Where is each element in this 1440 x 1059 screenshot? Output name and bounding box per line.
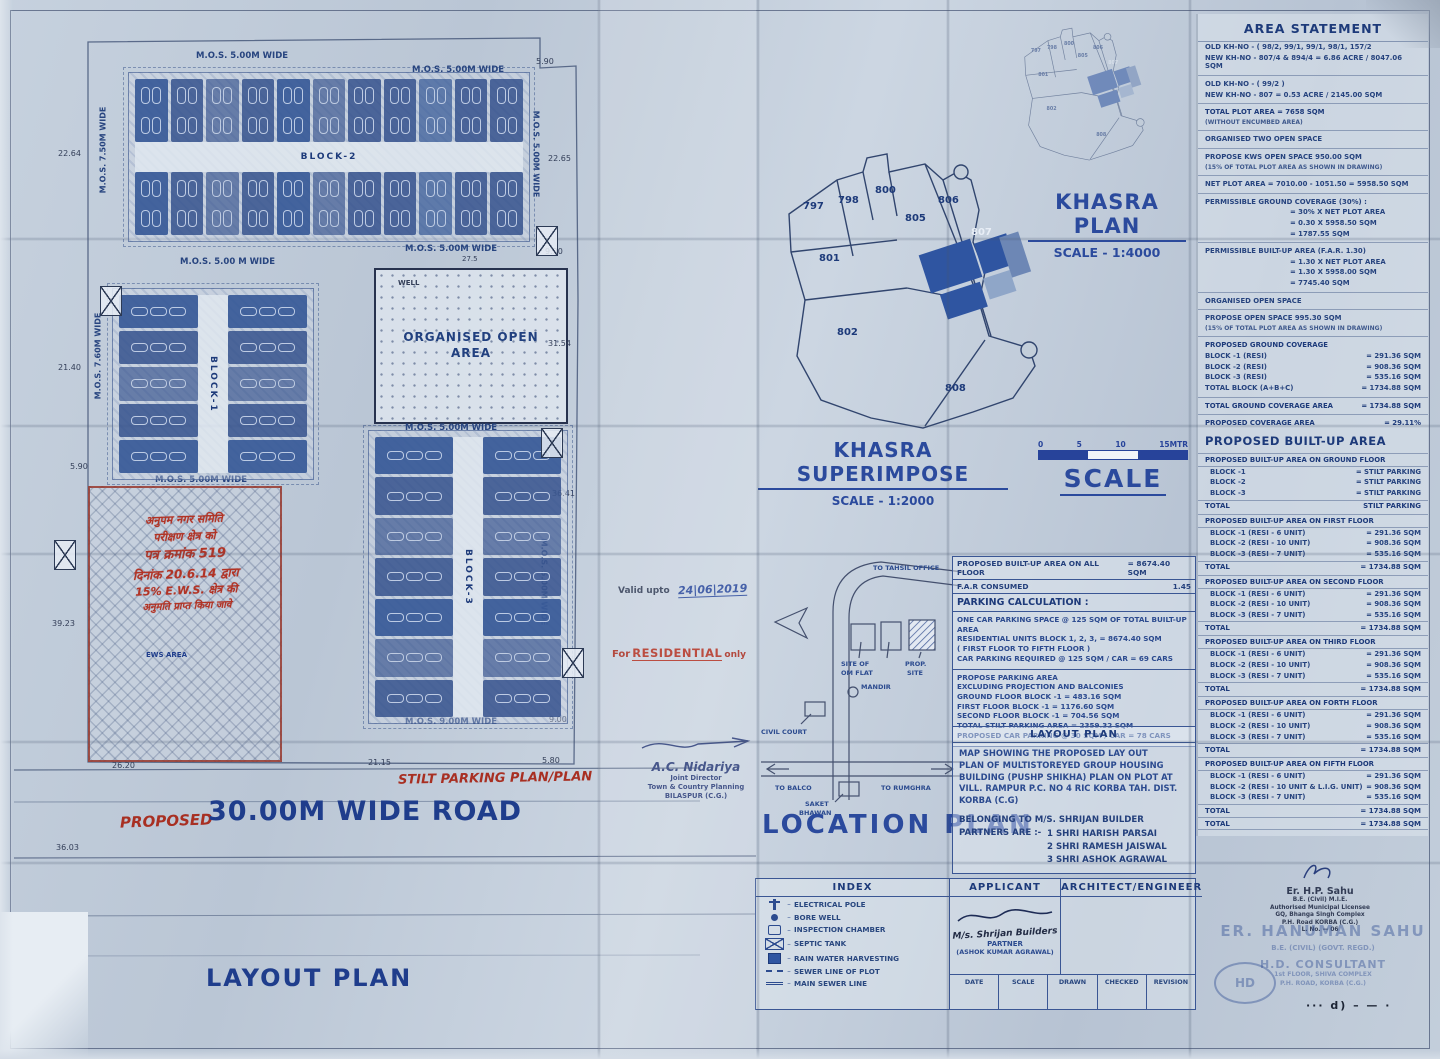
area-statement-rule [1198, 242, 1428, 243]
car-icon [248, 210, 257, 227]
floor-row: BLOCK -1= STILT PARKING [1198, 467, 1428, 478]
car-icon [294, 87, 303, 104]
floor-total-value: = 1734.88 SQM [1360, 563, 1421, 571]
area-statement-row: PROPOSED COVERAGE AREA= 29.11% [1198, 418, 1428, 429]
car-icon [278, 379, 295, 388]
car-icon [497, 210, 506, 227]
area-statement-text: NET PLOT AREA = 7010.00 - 1051.50 = 5958… [1205, 180, 1408, 189]
dim-36-03: 36.03 [56, 844, 79, 852]
floor-block-value: = 535.16 SQM [1366, 793, 1421, 802]
area-statement-rule [1198, 75, 1428, 76]
crossed-box-marker [536, 226, 558, 256]
floor-block-label: BLOCK -1 (RESI - 6 UNIT) [1210, 590, 1305, 599]
car-icon [152, 210, 161, 227]
nidariya-stamp-line: Joint Director [628, 774, 764, 783]
khasra-plot-number-small: 798 [1047, 47, 1057, 52]
car-icon [131, 343, 148, 352]
area-statement-row: BLOCK -1 (RESI)= 291.36 SQM [1198, 351, 1428, 362]
area-statement-text: PROPOSE KWS OPEN SPACE 950.00 SQM [1205, 153, 1362, 162]
stilt-parking-note: STILT PARKING PLAN/PLAN [398, 770, 592, 786]
partner-name: 2 SHRI RAMESH JAISWAL [1047, 841, 1167, 854]
car-icon [141, 180, 150, 197]
dim-5-90-top: 5.90 [536, 58, 554, 66]
car-icon [278, 343, 295, 352]
floor-block-value: = 291.36 SQM [1366, 711, 1421, 720]
floor-block-value: = STILT PARKING [1356, 489, 1421, 498]
applicant-signature-stroke [950, 905, 1060, 925]
area-statement-text: PERMISSIBLE GROUND COVERAGE (30%) : [1205, 198, 1367, 207]
area-statement-row: PERMISSIBLE BUILT-UP AREA (F.A.R. 1.30) [1198, 246, 1428, 257]
car-icon [461, 87, 470, 104]
car-icon [425, 572, 442, 581]
nidariya-stamp-line: Town & Country Planning [628, 783, 764, 792]
parking-stall [171, 79, 204, 142]
block-1-label: BLOCK-1 [208, 356, 218, 413]
car-icon [533, 613, 550, 622]
parking-text-line: ( FIRST FLOOR TO FIFTH FLOOR ) [957, 644, 1191, 654]
car-icon [426, 210, 435, 227]
parking-stall [375, 639, 453, 676]
floor-total-row: TOTAL= 1734.88 SQM [1198, 743, 1428, 755]
area-statement-text: OLD KH-NO - ( 99/2 ) [1205, 80, 1285, 89]
khasra-plot-number: 801 [819, 254, 840, 264]
area-statement-row: PROPOSED GROUND COVERAGE [1198, 340, 1428, 351]
index-dash: – [784, 940, 794, 948]
index-dash: – [784, 967, 794, 975]
area-statement-row: = 1.30 X NET PLOT AREA [1198, 257, 1428, 268]
floor-block-label: BLOCK -1 (RESI - 6 UNIT) [1210, 650, 1305, 659]
car-icon [283, 87, 292, 104]
area-statement-text: (WITHOUT ENCUMBED AREA) [1205, 119, 1303, 127]
area-statement-rule [1198, 292, 1428, 293]
floor-block-label: BLOCK -3 [1210, 489, 1246, 498]
floor-total-row: TOTAL= 1734.88 SQM [1198, 804, 1428, 816]
car-icon [425, 451, 442, 460]
sahu-signature-stroke [1290, 858, 1350, 882]
car-icon [152, 180, 161, 197]
floor-header: PROPOSED BUILT-UP AREA ON FORTH FLOOR [1198, 696, 1428, 710]
bore-well-icon [764, 914, 784, 921]
parking-stall [228, 295, 307, 328]
floor-total-row: TOTAL= 1734.88 SQM [1198, 682, 1428, 694]
car-icon [495, 613, 512, 622]
electrical-pole-icon [773, 899, 776, 910]
layout-plan-description-box: LAYOUT PLAN MAP SHOWING THE PROPOSED LAY… [952, 726, 1196, 874]
car-icon [495, 492, 512, 501]
car-icon [514, 613, 531, 622]
khasra-plan-map: 797798800805806807801802808 [775, 150, 1045, 440]
floor-block-value: = 908.36 SQM [1366, 539, 1421, 548]
car-icon [437, 117, 446, 134]
floor-total-label: TOTAL [1205, 624, 1230, 632]
rain-water-harvesting-icon [764, 953, 784, 964]
car-icon [240, 452, 257, 461]
car-icon [177, 180, 186, 197]
sahu-stamp-line: GQ, Bhanga Singh Complex [1252, 912, 1388, 920]
scale-bar-segments [1038, 450, 1188, 460]
parking-stall [483, 639, 561, 676]
car-icon [514, 492, 531, 501]
location-plan-label: SITE OF [841, 660, 869, 668]
index-title: INDEX [756, 879, 949, 897]
index-item-label: ELECTRICAL POLE [794, 900, 866, 909]
stall-band [135, 172, 523, 235]
main-sewer-icon [764, 982, 784, 985]
car-icon [319, 117, 328, 134]
car-icon [212, 117, 221, 134]
partners-label: PARTNERS ARE :- [959, 828, 1047, 867]
khasra-plot-number-small: 802 [1047, 108, 1057, 113]
khasra-superimpose-titleblock: KHASRA SUPERIMPOSE SCALE - 1:2000 [758, 438, 1008, 508]
area-statement-text: = 30% X NET PLOT AREA [1290, 208, 1385, 217]
car-icon [495, 572, 512, 581]
floor-block-value: = 291.36 SQM [1366, 590, 1421, 599]
car-icon [406, 653, 423, 662]
car-icon [514, 694, 531, 703]
area-statement-text: NEW KH-NO - 807/4 & 894/4 = 6.86 ACRE / … [1205, 54, 1421, 71]
area-statement-text: = 1.30 X 5958.00 SQM [1290, 268, 1377, 277]
parking-stall [228, 331, 307, 364]
area-statement-value: = 1734.88 SQM [1361, 402, 1421, 411]
layout-description-line: MAP SHOWING THE PROPOSED LAY OUT [959, 748, 1189, 760]
car-icon [514, 451, 531, 460]
scale-bar: 051015MTR SCALE [1038, 440, 1188, 496]
area-statement-text: ORGANISED OPEN SPACE [1205, 297, 1302, 306]
car-icon [283, 210, 292, 227]
car-icon [131, 379, 148, 388]
car-icon [472, 180, 481, 197]
car-icon [497, 180, 506, 197]
floor-row: BLOCK -2= STILT PARKING [1198, 477, 1428, 488]
block-2-label: BLOCK-2 [301, 152, 358, 162]
car-icon [169, 416, 186, 425]
consultant-qualification: B.E. (CIVIL) (GOVT. REGD.) [1216, 944, 1430, 952]
area-statement-row: NEW KH-NO - 807/4 & 894/4 = 6.86 ACRE / … [1198, 53, 1428, 72]
floor-block-value: = STILT PARKING [1356, 468, 1421, 477]
car-icon [426, 117, 435, 134]
inspection-chamber-icon [768, 925, 781, 935]
layout-description-line: PLAN OF MULTISTOREYED GROUP HOUSING [959, 760, 1189, 772]
sahu-name: Er. H.P. Sahu [1252, 886, 1388, 897]
car-icon [508, 87, 517, 104]
area-statement-row: = 7745.40 SQM [1198, 278, 1428, 289]
car-icon [387, 694, 404, 703]
dim-26-20: 26.20 [112, 762, 135, 770]
parking-stall [135, 172, 168, 235]
block-1: BLOCK-1 [112, 288, 314, 480]
floor-block-value: = 535.16 SQM [1366, 550, 1421, 559]
applicant-role: PARTNER [950, 940, 1060, 948]
car-icon [387, 492, 404, 501]
location-plan-label: OM FLAT [841, 669, 873, 677]
car-icon [177, 87, 186, 104]
car-icon [283, 117, 292, 134]
floor-row: BLOCK -3 (RESI - 7 UNIT)= 535.16 SQM [1198, 732, 1428, 743]
applicant-name: (ASHOK KUMAR AGRAWAL) [950, 948, 1060, 956]
scale-tick: 15MTR [1159, 440, 1188, 449]
floor-row: BLOCK -2 (RESI - 10 UNIT & L.I.G. UNIT)=… [1198, 782, 1428, 793]
khasra-plot-number-small: 807 [1108, 62, 1118, 67]
area-statement-row: OLD KH-NO - ( 99/2 ) [1198, 79, 1428, 90]
dim-22-64: 22.64 [58, 150, 81, 158]
parking-stall [119, 367, 198, 400]
floor-row: BLOCK -1 (RESI - 6 UNIT)= 291.36 SQM [1198, 589, 1428, 600]
car-icon [390, 117, 399, 134]
layout-description-line: VILL. RAMPUR P.C. NO 4 RIC KORBA TAH. DI… [959, 783, 1189, 795]
layout-plan-title: LAYOUT PLAN [206, 966, 412, 990]
area-statement-text: PROPOSE OPEN SPACE 995.30 SQM [1205, 314, 1342, 323]
floor-row: BLOCK -1 (RESI - 6 UNIT)= 291.36 SQM [1198, 649, 1428, 660]
car-icon [150, 307, 167, 316]
floor-block-label: BLOCK -1 (RESI - 6 UNIT) [1210, 529, 1305, 538]
car-icon [319, 180, 328, 197]
floor-total-label: TOTAL [1205, 807, 1230, 815]
car-icon [188, 210, 197, 227]
partner-name: 3 SHRI ASHOK AGRAWAL [1047, 854, 1167, 867]
parking-stall [490, 172, 523, 235]
architect-cell: ARCHITECT/ENGINEER [1061, 879, 1202, 974]
residential-only-note: ForRESIDENTIALonly [612, 642, 746, 661]
index-dash: – [784, 926, 794, 934]
blueprint-sheet: ORGANISED OPENAREA अनुपम नगर समितिपरीक्ष… [0, 0, 1440, 1059]
parking-stall [483, 680, 561, 717]
electrical-pole-icon [764, 899, 784, 910]
parking-stall [119, 404, 198, 437]
car-icon [169, 452, 186, 461]
parking-stall [228, 404, 307, 437]
block-2: BLOCK-2 [128, 72, 530, 242]
car-icon [461, 210, 470, 227]
floor-block-value: = 535.16 SQM [1366, 733, 1421, 742]
floor-row: BLOCK -2 (RESI - 10 UNIT)= 908.36 SQM [1198, 660, 1428, 671]
car-icon [437, 180, 446, 197]
septic-tank-icon [764, 938, 784, 950]
consultant-logo: HD [1214, 962, 1276, 1004]
car-icon [169, 307, 186, 316]
parking-stall [228, 367, 307, 400]
car-icon [401, 180, 410, 197]
index-dash: – [784, 913, 794, 921]
floor-row: BLOCK -3= STILT PARKING [1198, 488, 1428, 499]
khasra-plot-number: 802 [837, 328, 858, 338]
parking-stall [135, 79, 168, 142]
parking-text-line: FIRST FLOOR BLOCK -1 = 1176.60 SQM [957, 702, 1191, 712]
parking-stall [119, 331, 198, 364]
car-icon [387, 653, 404, 662]
area-statement-row: NEW KH-NO - 807 = 0.53 ACRE / 2145.00 SQ… [1198, 90, 1428, 101]
floor-block-label: BLOCK -2 (RESI - 10 UNIT) [1210, 539, 1310, 548]
parking-text-line: SECOND FLOOR BLOCK -1 = 704.56 SQM [957, 711, 1191, 721]
area-statement-rule [1198, 175, 1428, 176]
stall-band [483, 437, 561, 717]
car-icon [533, 572, 550, 581]
car-icon [283, 180, 292, 197]
area-statement-text: = 7745.40 SQM [1290, 279, 1350, 288]
area-statement-rule [1198, 130, 1428, 131]
khasra-plot-number-small: 808 [1096, 134, 1106, 139]
built-up-title: PROPOSED BUILT-UP AREA [1198, 429, 1428, 451]
area-statement-text: = 1.30 X NET PLOT AREA [1290, 258, 1386, 267]
car-icon [259, 117, 268, 134]
area-statement-value: = 535.16 SQM [1366, 373, 1421, 382]
mos-block1-left-label: M.O.S. 7.60M WIDE [94, 313, 102, 400]
khasra-plan-title: KHASRA PLAN [1028, 190, 1186, 242]
car-icon [223, 87, 232, 104]
car-icon [240, 416, 257, 425]
car-icon [330, 117, 339, 134]
car-icon [495, 451, 512, 460]
index-item-label: INSPECTION CHAMBER [794, 925, 885, 934]
area-statement-row: TOTAL GROUND COVERAGE AREA= 1734.88 SQM [1198, 401, 1428, 412]
car-icon [437, 87, 446, 104]
floor-header: PROPOSED BUILT-UP AREA ON FIFTH FLOOR [1198, 757, 1428, 771]
floor-block-value: = 291.36 SQM [1366, 529, 1421, 538]
area-statement-text: (15% OF TOTAL PLOT AREA AS SHOWN IN DRAW… [1205, 164, 1382, 172]
index-item-label: BORE WELL [794, 913, 841, 922]
khasra-plot-number-small: 806 [1093, 47, 1103, 52]
area-statement-text: PROPOSED COVERAGE AREA [1205, 419, 1315, 428]
floor-row: BLOCK -1 (RESI - 6 UNIT)= 291.36 SQM [1198, 528, 1428, 539]
car-icon [150, 452, 167, 461]
car-icon [472, 87, 481, 104]
road-title: 30.00M WIDE ROAD [208, 798, 522, 825]
floor-total-value: = 1734.88 SQM [1360, 624, 1421, 632]
proposed-red-note: PROPOSED [120, 812, 213, 830]
car-icon [248, 180, 257, 197]
area-statement-row: = 30% X NET PLOT AREA [1198, 207, 1428, 218]
crossed-box-marker [562, 648, 584, 678]
car-icon [240, 379, 257, 388]
parking-stall [483, 477, 561, 514]
dim-22-65: 22.65 [548, 155, 571, 163]
area-statement-text: TOTAL BLOCK (A+B+C) [1205, 384, 1293, 393]
car-icon [131, 416, 148, 425]
floor-block-value: = 535.16 SQM [1366, 672, 1421, 681]
car-icon [390, 87, 399, 104]
area-statement-text: NEW KH-NO - 807 = 0.53 ACRE / 2145.00 SQ… [1205, 91, 1382, 100]
khasra-plot-number: 808 [945, 384, 966, 394]
car-icon [131, 307, 148, 316]
parking-stall [483, 518, 561, 555]
floor-row: BLOCK -3 (RESI - 7 UNIT)= 535.16 SQM [1198, 610, 1428, 621]
organised-open-area: ORGANISED OPENAREA [374, 268, 568, 424]
location-plan-label: SAKET [805, 800, 829, 808]
area-statement-row: ORGANISED TWO OPEN SPACE [1198, 134, 1428, 145]
block-corridor: BLOCK-2 [135, 142, 523, 172]
khasra-plan-titleblock: KHASRA PLAN SCALE - 1:4000 [1028, 190, 1186, 260]
car-icon [152, 87, 161, 104]
parking-stall [483, 599, 561, 636]
floor-block-value: = 291.36 SQM [1366, 772, 1421, 781]
main-sewer-icon [766, 982, 783, 985]
area-statement-row: BLOCK -2 (RESI)= 908.36 SQM [1198, 362, 1428, 373]
car-icon [294, 117, 303, 134]
floor-block-value: = 908.36 SQM [1366, 600, 1421, 609]
index-legend: INDEX –ELECTRICAL POLE–BORE WELL–INSPECT… [756, 879, 950, 1009]
dim-21-15: 21.15 [368, 759, 391, 767]
khasra-plot-number: 798 [838, 196, 859, 206]
index-item: –MAIN SEWER LINE [756, 977, 949, 989]
crossed-box-marker [54, 540, 76, 570]
ews-handwritten-note: अनुपम नगर समितिपरीक्षण क्षेत्र कोपत्र क्… [88, 485, 282, 618]
car-icon [426, 180, 435, 197]
car-icon [223, 117, 232, 134]
area-statement-row: ORGANISED OPEN SPACE [1198, 296, 1428, 307]
khasra-plot-number: 797 [803, 202, 824, 212]
khasra-plot-number-small: 805 [1078, 55, 1088, 60]
car-icon [177, 117, 186, 134]
floor-block-label: BLOCK -2 (RESI - 10 UNIT) [1210, 722, 1310, 731]
car-icon [401, 210, 410, 227]
title-block-band: INDEX –ELECTRICAL POLE–BORE WELL–INSPECT… [755, 878, 1196, 1010]
area-statement-rule [1198, 397, 1428, 398]
scale-bar-ticks: 051015MTR [1038, 440, 1188, 449]
car-icon [508, 117, 517, 134]
area-statement-rule [1198, 148, 1428, 149]
partners-list: 1 SHRI HARISH PARSAI2 SHRI RAMESH JAISWA… [1047, 828, 1167, 867]
area-statement-row: PROPOSE OPEN SPACE 995.30 SQM [1198, 313, 1428, 324]
floor-block-label: BLOCK -3 (RESI - 7 UNIT) [1210, 793, 1305, 802]
index-item: –RAIN WATER HARVESTING [756, 951, 949, 965]
area-statement-row: PERMISSIBLE GROUND COVERAGE (30%) : [1198, 197, 1428, 208]
floor-block-value: = 291.36 SQM [1366, 650, 1421, 659]
car-icon [514, 653, 531, 662]
sewer-line-icon [764, 970, 784, 972]
parking-text-line: EXCLUDING PROJECTION AND BALCONIES [957, 682, 1191, 692]
car-icon [141, 210, 150, 227]
index-item-label: MAIN SEWER LINE [794, 979, 867, 988]
khasra-superimpose-title: KHASRA SUPERIMPOSE [758, 438, 1008, 490]
mos-below-block2-right-label: M.O.S. 5.00M WIDE [405, 245, 497, 254]
car-icon [514, 572, 531, 581]
area-statement-row: = 1787.55 SQM [1198, 229, 1428, 240]
area-statement-text: BLOCK -3 (RESI) [1205, 373, 1267, 382]
ews-area-label: EWS AREA [146, 652, 187, 659]
partner-name: 1 SHRI HARISH PARSAI [1047, 828, 1167, 841]
car-icon [259, 416, 276, 425]
car-icon [150, 379, 167, 388]
location-plan-map: TO TAHSIL OFFICESITE OFOM FLATPROP.SITEM… [755, 552, 975, 837]
parking-text-line: GROUND FLOOR BLOCK -1 = 483.16 SQM [957, 692, 1191, 702]
floor-header: PROPOSED BUILT-UP AREA ON FIRST FLOOR [1198, 514, 1428, 528]
floor-block-label: BLOCK -3 (RESI - 7 UNIT) [1210, 672, 1305, 681]
area-statement-row: OLD KH-NO - ( 98/2, 99/1, 99/1, 98/1, 15… [1198, 42, 1428, 53]
car-icon [406, 694, 423, 703]
parking-stall [455, 172, 488, 235]
area-statement-text: ORGANISED TWO OPEN SPACE [1205, 135, 1322, 144]
car-icon [401, 87, 410, 104]
well-label: WELL [398, 280, 419, 287]
floor-total-row: TOTAL= 1734.88 SQM [1198, 561, 1428, 573]
valid-upto-value: 24|06|2019 [678, 582, 748, 598]
floor-total-value: = 1734.88 SQM [1360, 746, 1421, 754]
car-icon [508, 180, 517, 197]
mos-right-block2-label: M.O.S. 5.00M WIDE [531, 111, 539, 198]
ews-area: अनुपम नगर समितिपरीक्षण क्षेत्र कोपत्र क्… [88, 486, 282, 762]
parking-stall [455, 79, 488, 142]
area-statement-value: = 291.36 SQM [1366, 352, 1421, 361]
stall-band [375, 437, 453, 717]
car-icon [401, 117, 410, 134]
stall-band [228, 295, 307, 473]
consultant-stamp: HD ER. HANUMAN SAHU B.E. (CIVIL) (GOVT. … [1216, 922, 1430, 988]
floor-row: BLOCK -1 (RESI - 6 UNIT)= 291.36 SQM [1198, 771, 1428, 782]
septic-tank-icon [765, 938, 784, 950]
khasra-plan-scale: SCALE - 1:4000 [1028, 245, 1186, 260]
car-icon [461, 117, 470, 134]
location-plan-label: TO BALCO [775, 784, 812, 792]
floor-total-row: TOTAL= 1734.88 SQM [1198, 621, 1428, 633]
